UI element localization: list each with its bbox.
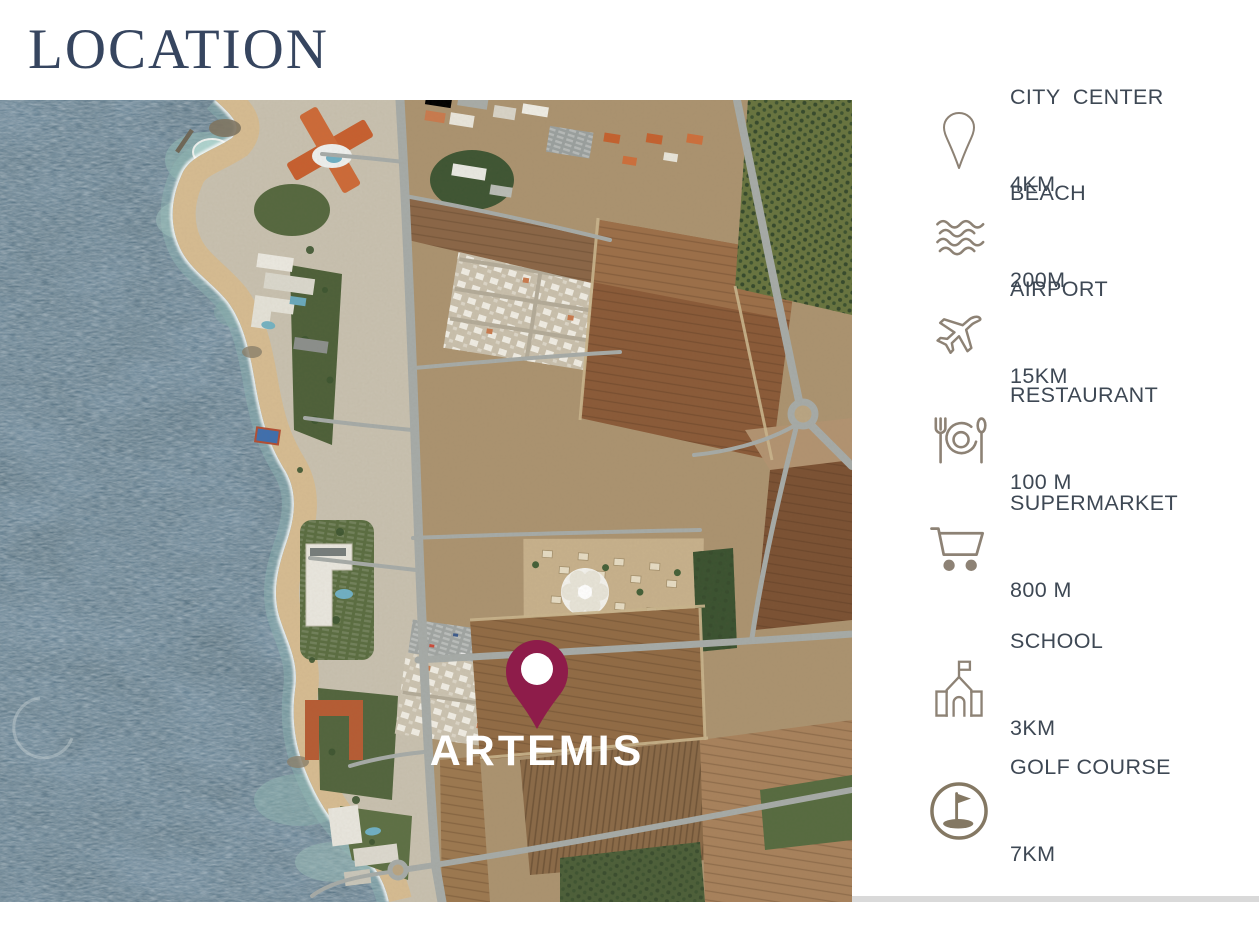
location-pin-icon bbox=[920, 109, 998, 173]
satellite-map-illustration: ARTEMIS bbox=[0, 100, 852, 902]
school-icon bbox=[920, 650, 998, 720]
amenity-label: BEACH bbox=[1010, 179, 1086, 208]
amenity-label: SUPERMARKET bbox=[1010, 489, 1178, 518]
amenity-label: GOLF COURSE bbox=[1010, 753, 1171, 782]
amenities-list: CITY CENTER 4KM BEACH 200M AIRPORT 15KM bbox=[900, 0, 1259, 902]
airplane-icon bbox=[920, 307, 998, 359]
page-title: LOCATION bbox=[28, 16, 329, 84]
bottom-edge-strip bbox=[852, 896, 1259, 902]
golf-icon bbox=[920, 776, 998, 846]
restaurant-icon bbox=[920, 410, 998, 468]
amenity-item-golf-course: GOLF COURSE 7KM bbox=[900, 772, 1259, 850]
property-name-label: ARTEMIS bbox=[430, 727, 645, 775]
amenity-distance: 7KM bbox=[1010, 840, 1171, 869]
location-map: ARTEMIS bbox=[0, 100, 852, 902]
waves-icon bbox=[920, 215, 998, 259]
amenity-label: RESTAURANT bbox=[1010, 381, 1158, 410]
shopping-cart-icon bbox=[920, 518, 998, 576]
pin-inner-circle bbox=[521, 653, 553, 685]
map-texture-overlay bbox=[0, 100, 852, 902]
amenity-label: SCHOOL bbox=[1010, 627, 1103, 656]
amenity-label: CITY CENTER bbox=[1010, 83, 1164, 112]
amenity-label: AIRPORT bbox=[1010, 275, 1108, 304]
